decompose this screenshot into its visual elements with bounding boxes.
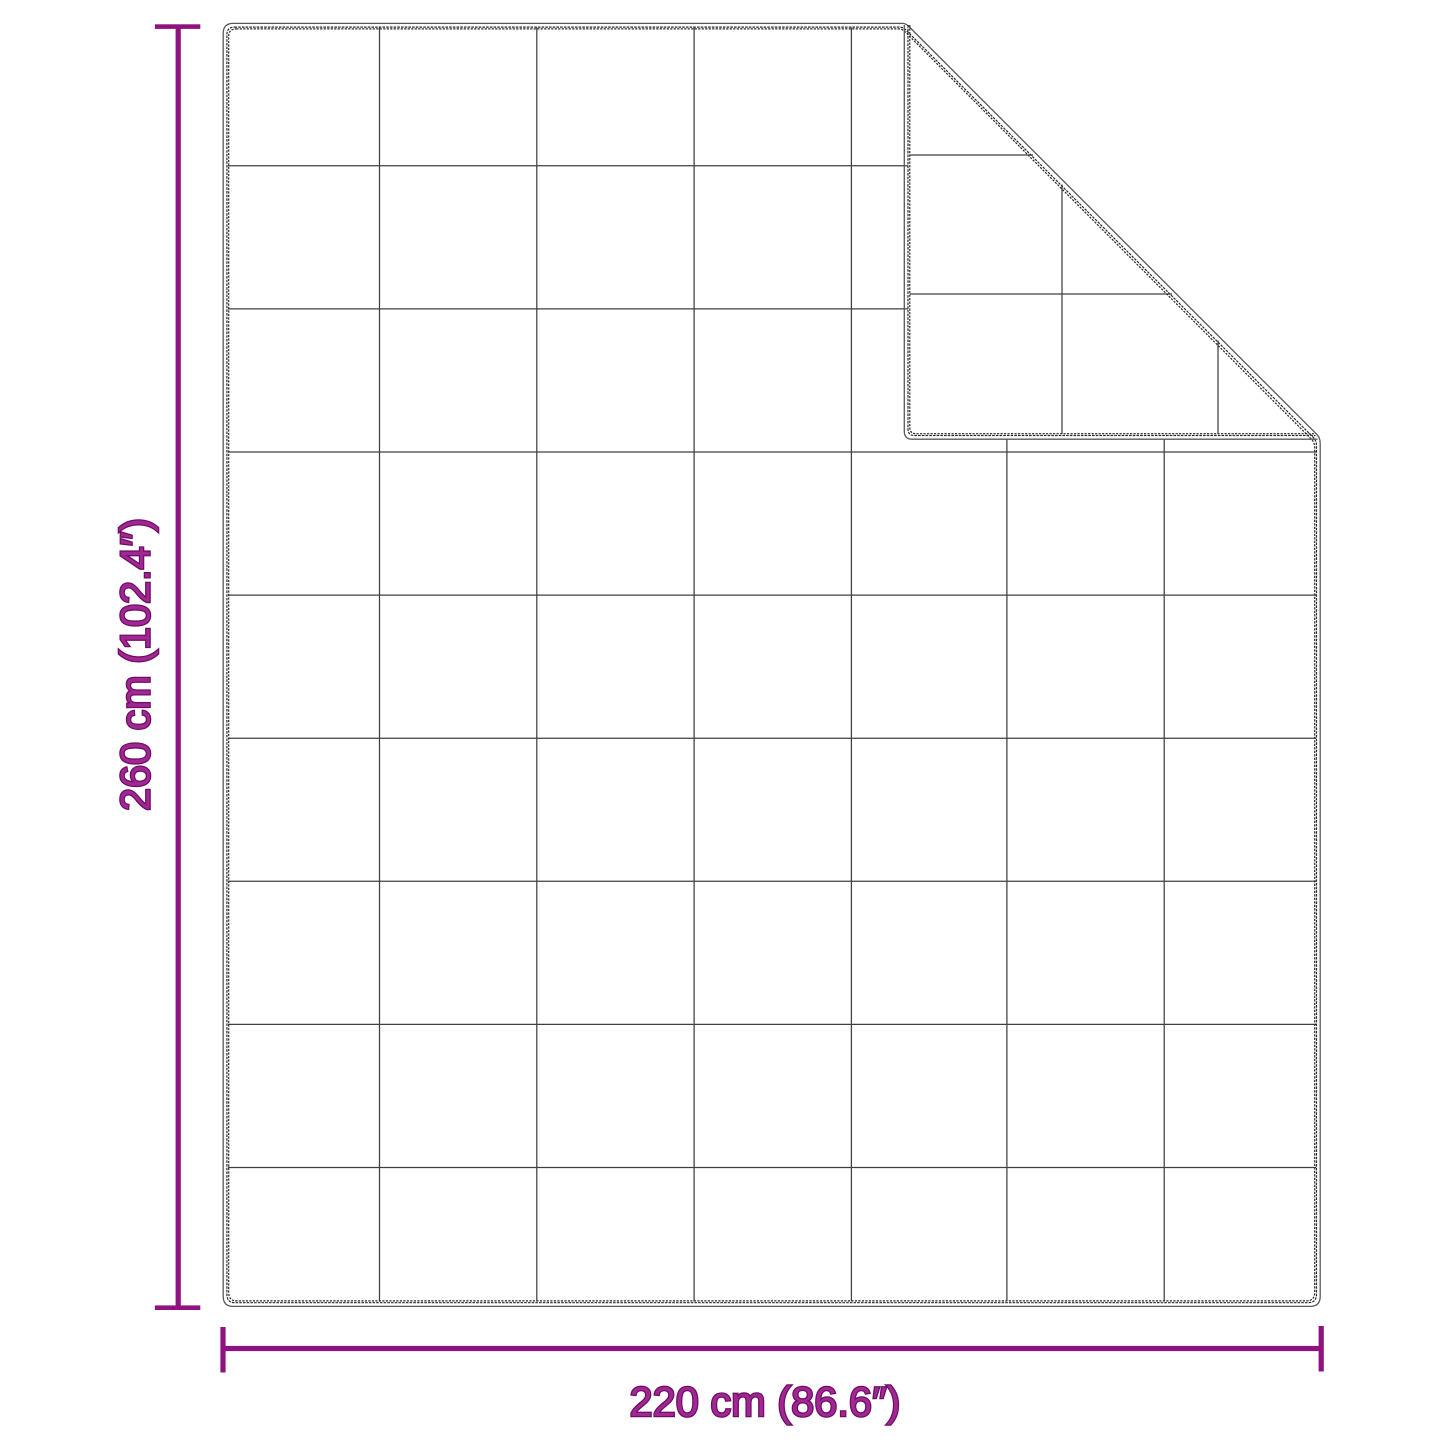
svg-text:220 cm (86.6″): 220 cm (86.6″) <box>630 1378 901 1425</box>
svg-text:260 cm (102.4″): 260 cm (102.4″) <box>112 518 159 811</box>
